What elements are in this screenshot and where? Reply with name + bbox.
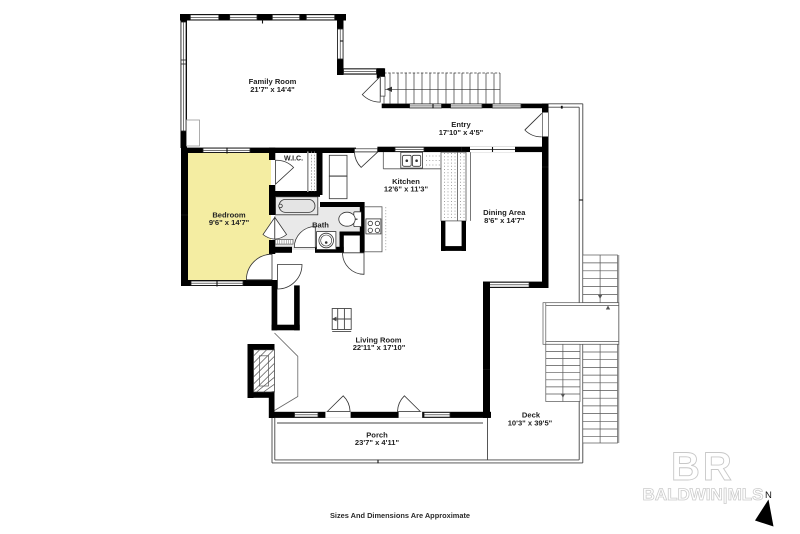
svg-text:BALDWIN|MLS: BALDWIN|MLS xyxy=(643,485,764,504)
svg-text:W.I.C.: W.I.C. xyxy=(284,155,303,162)
svg-text:Bath: Bath xyxy=(312,221,329,230)
svg-text:12'6" x 11'3": 12'6" x 11'3" xyxy=(384,185,429,194)
svg-text:22'11" x 17'10": 22'11" x 17'10" xyxy=(353,343,406,352)
svg-text:23'7" x 4'11": 23'7" x 4'11" xyxy=(355,438,400,447)
svg-text:BR: BR xyxy=(671,445,735,489)
svg-text:21'7" x 14'4": 21'7" x 14'4" xyxy=(250,85,295,94)
svg-text:Sizes And Dimensions Are Appro: Sizes And Dimensions Are Approximate xyxy=(330,511,470,520)
svg-text:17'10" x 4'5": 17'10" x 4'5" xyxy=(439,128,484,137)
svg-text:8'6" x 14'7": 8'6" x 14'7" xyxy=(484,216,525,225)
svg-text:10'3" x 39'5": 10'3" x 39'5" xyxy=(508,418,553,427)
svg-text:N: N xyxy=(765,490,772,501)
svg-text:9'6" x 14'7": 9'6" x 14'7" xyxy=(209,218,250,227)
